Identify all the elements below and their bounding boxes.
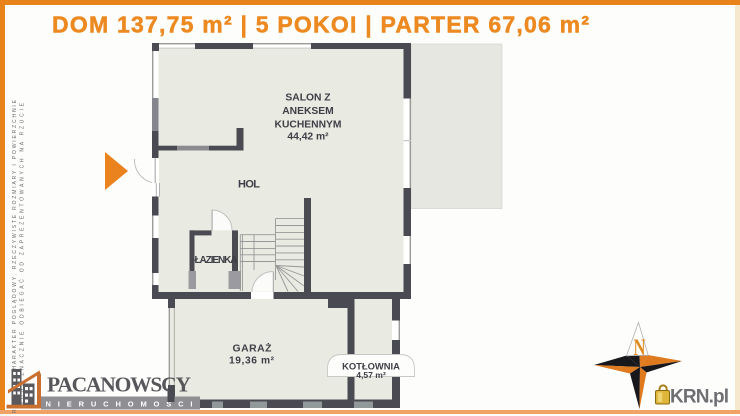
svg-text:KRN.pl: KRN.pl xyxy=(670,387,729,408)
svg-text:RZUT MA CHARAKTER POGLĄDOWY, R: RZUT MA CHARAKTER POGLĄDOWY, RZECZYWISTE… xyxy=(12,99,18,413)
svg-text:19,36 m²: 19,36 m² xyxy=(229,356,275,367)
svg-text:44,42 m²: 44,42 m² xyxy=(287,132,329,143)
svg-text:SALON Z: SALON Z xyxy=(285,93,330,104)
svg-text:DOM 137,75 m² | 5 POKOI | PART: DOM 137,75 m² | 5 POKOI | PARTER 67,06 m… xyxy=(52,12,589,38)
svg-text:HOL: HOL xyxy=(238,179,260,191)
svg-text:GARAŻ: GARAŻ xyxy=(233,342,273,355)
svg-text:N: N xyxy=(634,335,646,360)
svg-text:ŁAZIENKA: ŁAZIENKA xyxy=(195,255,238,266)
svg-text:4,57 m²: 4,57 m² xyxy=(356,370,386,380)
svg-text:KUCHENNYM: KUCHENNYM xyxy=(275,119,342,130)
svg-text:ANEKSEM: ANEKSEM xyxy=(282,106,334,117)
